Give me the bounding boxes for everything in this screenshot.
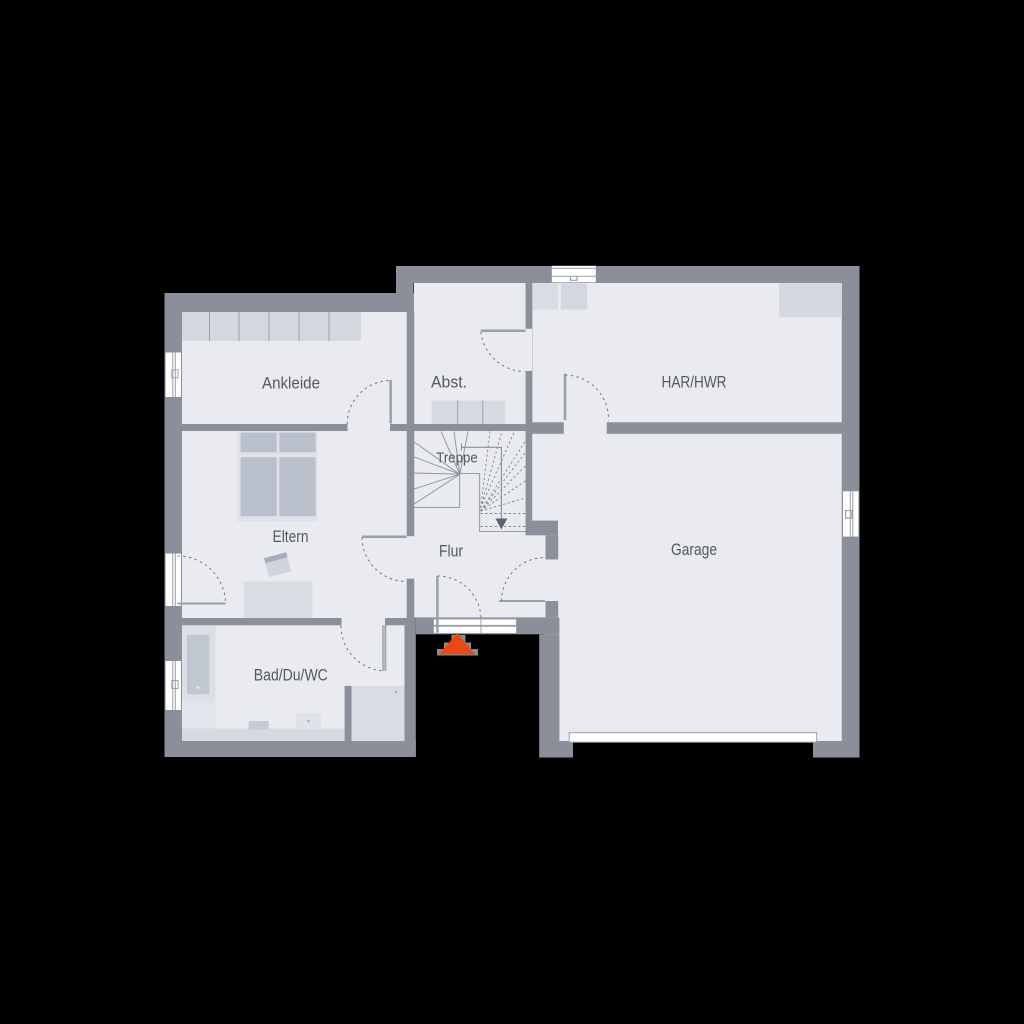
svg-text:Bad/Du/WC: Bad/Du/WC bbox=[254, 666, 328, 685]
svg-text:Eltern: Eltern bbox=[273, 527, 309, 546]
svg-text:Ankleide: Ankleide bbox=[262, 374, 320, 393]
svg-text:Flur: Flur bbox=[439, 542, 463, 561]
svg-text:Garage: Garage bbox=[671, 540, 717, 559]
svg-text:HAR/HWR: HAR/HWR bbox=[662, 372, 727, 391]
svg-text:Abst.: Abst. bbox=[431, 372, 467, 391]
svg-text:Treppe: Treppe bbox=[436, 450, 478, 467]
